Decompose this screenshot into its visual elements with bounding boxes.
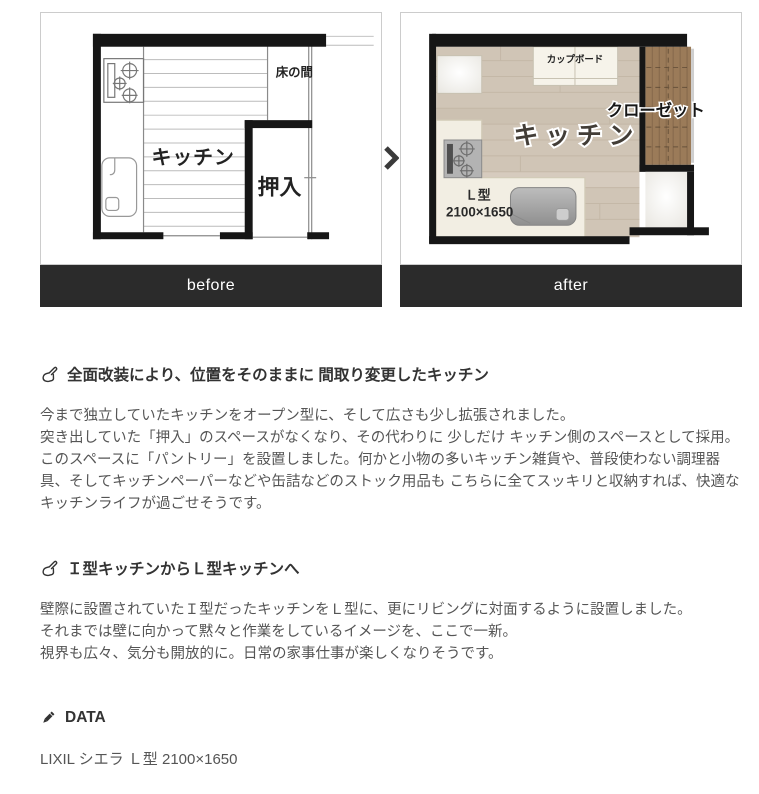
before-oshiire-label: 押入 [258, 175, 302, 200]
stove-icon [444, 140, 482, 178]
data-heading: DATA [40, 709, 742, 727]
after-caption-bar: after [400, 265, 742, 307]
chevron-right-icon [383, 145, 399, 171]
page: キッチン 押入 床の間 before [0, 0, 759, 771]
section-body-text: 今まで独立していたキッチンをオープン型に、そして広さも少し拡張されました。 突き… [40, 405, 742, 515]
section-layout-change: 全面改装により、位置をそのままに 間取り変更したキッチン 今まで独立していたキッ… [40, 363, 742, 515]
data-heading-text: DATA [65, 709, 106, 727]
after-layout-size-label: 2100×1650 [446, 204, 513, 219]
before-label: before [187, 277, 235, 295]
comparison-arrow [382, 12, 400, 307]
before-floorplan-image: キッチン 押入 床の間 [40, 12, 382, 265]
before-caption-bar: before [40, 265, 382, 307]
section-kitchen-type: Ｉ型キッチンからＬ型キッチンへ 壁際に設置されていたＩ型だったキッチンをＬ型に、… [40, 557, 742, 665]
pointing-hand-icon [40, 365, 58, 383]
after-label: after [554, 277, 589, 295]
before-after-comparison: キッチン 押入 床の間 before [40, 12, 742, 307]
after-layout-type-label: Ｌ型 [465, 188, 491, 203]
section-heading: Ｉ型キッチンからＬ型キッチンへ [40, 557, 742, 579]
pencil-icon [40, 710, 56, 726]
after-floorplan: キッチン カップボード クローゼット Ｌ型 2100×1650 [401, 13, 741, 264]
sink-icon [510, 188, 575, 226]
cupboard [533, 47, 617, 86]
refrigerator [437, 56, 482, 94]
sink-icon [102, 158, 137, 217]
pointing-hand-icon [40, 559, 58, 577]
section-data: DATA LIXIL シエラ Ｌ型 2100×1650 [40, 709, 742, 771]
before-kitchen-label: キッチン [152, 147, 235, 169]
section-heading-text: Ｉ型キッチンからＬ型キッチンへ [67, 557, 300, 579]
after-floorplan-image: キッチン カップボード クローゼット Ｌ型 2100×1650 [400, 12, 742, 265]
data-value-text: LIXIL シエラ Ｌ型 2100×1650 [40, 749, 742, 771]
after-cupboard-label: カップボード [547, 54, 603, 65]
after-closet-label: クローゼット [607, 101, 705, 120]
section-heading-text: 全面改装により、位置をそのままに 間取り変更したキッチン [67, 363, 489, 385]
before-floorplan: キッチン 押入 床の間 [41, 13, 381, 264]
section-heading: 全面改装により、位置をそのままに 間取り変更したキッチン [40, 363, 742, 385]
stove-icon [104, 59, 144, 104]
before-panel: キッチン 押入 床の間 before [40, 12, 382, 307]
after-kitchen-label: キッチン [513, 123, 640, 150]
pantry-room [645, 172, 687, 228]
after-panel: キッチン カップボード クローゼット Ｌ型 2100×1650 after [400, 12, 742, 307]
before-tokonoma-label: 床の間 [276, 64, 313, 79]
section-body-text: 壁際に設置されていたＩ型だったキッチンをＬ型に、更にリビングに対面するように設置… [40, 599, 742, 665]
